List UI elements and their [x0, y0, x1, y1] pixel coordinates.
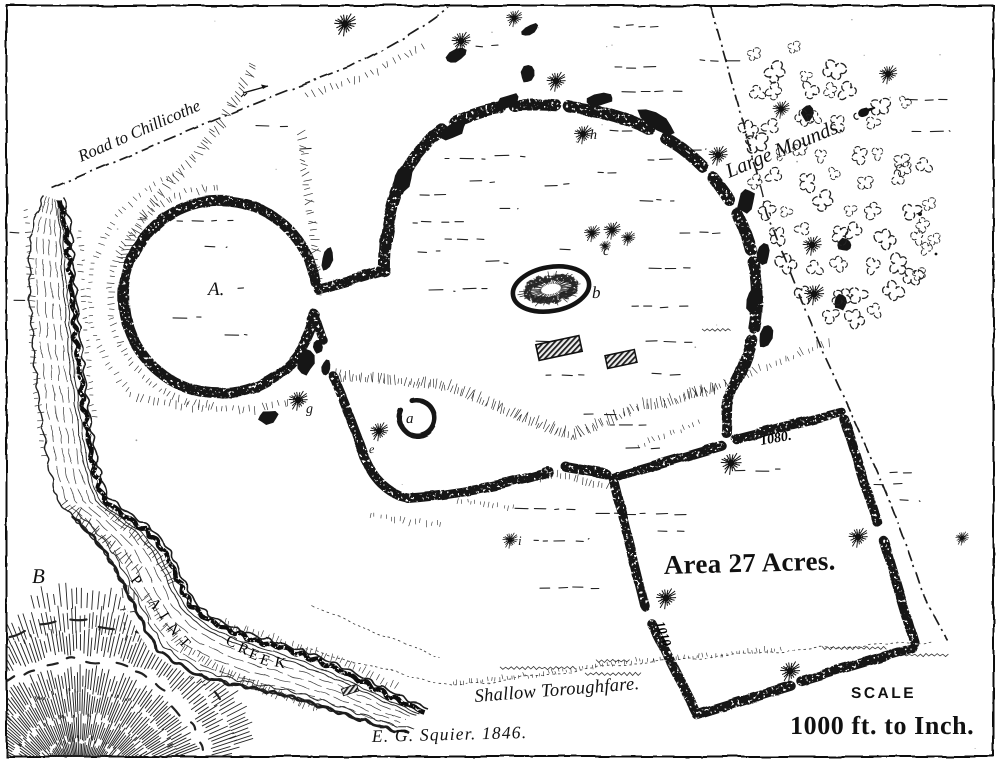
svg-text:1000 ft. to Inch.: 1000 ft. to Inch.: [790, 711, 974, 740]
svg-text:SCALE: SCALE: [851, 685, 916, 702]
svg-text:i: i: [518, 533, 522, 548]
svg-text:c: c: [603, 244, 610, 259]
svg-text:b: b: [592, 283, 601, 302]
svg-text:A.: A.: [206, 279, 224, 300]
svg-text:h: h: [590, 128, 597, 143]
svg-text:e: e: [369, 442, 375, 456]
svg-text:E. G. Squier. 1846.: E. G. Squier. 1846.: [371, 722, 528, 746]
svg-text:a: a: [406, 411, 414, 427]
svg-text:B: B: [32, 564, 45, 588]
svg-text:Area 27 Acres.: Area 27 Acres.: [663, 546, 836, 580]
svg-text:g: g: [306, 402, 313, 417]
